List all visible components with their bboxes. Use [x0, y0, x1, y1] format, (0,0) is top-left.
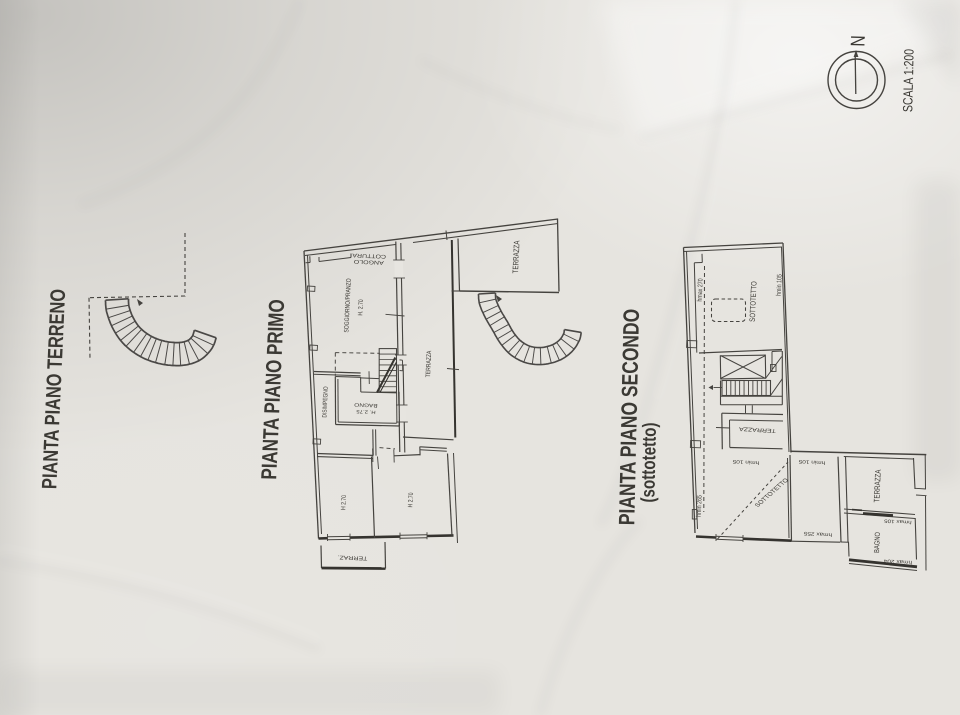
svg-text:BAGNO: BAGNO	[354, 401, 378, 407]
svg-text:TERRAZZA: TERRAZZA	[511, 240, 521, 273]
svg-text:(sottotetto): (sottotetto)	[636, 422, 660, 502]
svg-text:DISIMPEGNO: DISIMPEGNO	[322, 386, 330, 418]
svg-text:H 2.70: H 2.70	[408, 492, 415, 507]
svg-text:N: N	[847, 35, 870, 47]
svg-text:hmin 105: hmin 105	[775, 273, 784, 295]
svg-text:SCALA 1:200: SCALA 1:200	[900, 49, 917, 113]
svg-text:H. 2.75: H. 2.75	[356, 408, 376, 414]
svg-text:H. 2.70: H. 2.70	[358, 299, 365, 315]
svg-text:TERRAZZA: TERRAZZA	[426, 350, 434, 377]
svg-text:BAGNO: BAGNO	[873, 532, 882, 553]
svg-text:TERRAZ.: TERRAZ.	[337, 554, 368, 561]
svg-text:H 2.70: H 2.70	[341, 495, 348, 510]
svg-text:hmin 265: hmin 265	[695, 494, 704, 516]
svg-text:TERRAZZA: TERRAZZA	[873, 469, 883, 502]
svg-text:hmax 270: hmax 270	[696, 278, 705, 302]
